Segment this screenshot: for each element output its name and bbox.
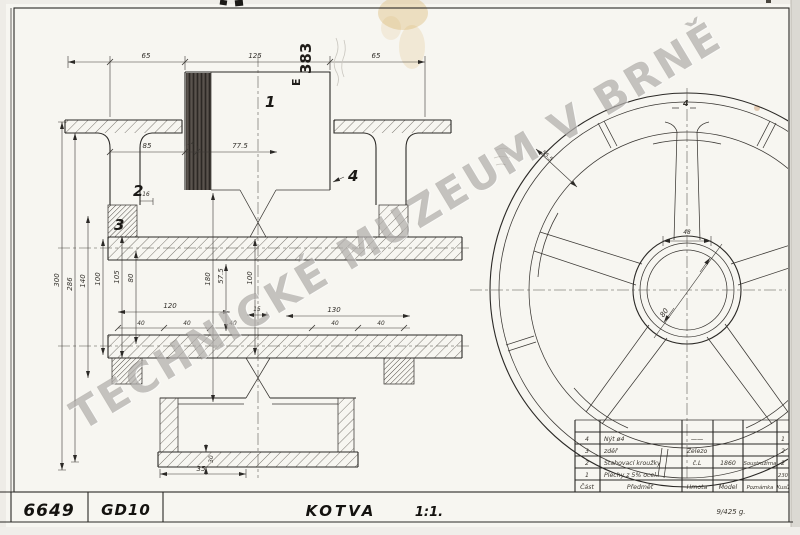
drawing-scale: 1:1. [415,505,443,520]
svg-text:Železo: Železo [686,446,708,455]
spoke-fillet-arcs [538,140,800,428]
svg-text:Plechy z 5% ocel.: Plechy z 5% ocel. [604,472,658,479]
table-header-item: Část [580,482,594,491]
drawing-code: GD10 [101,501,151,519]
svg-text:——: —— [691,436,703,443]
svg-text:120: 120 [163,302,177,310]
svg-text:4: 4 [585,436,589,443]
svg-text:130: 130 [327,306,341,314]
svg-text:E: E [290,78,303,86]
svg-text:30: 30 [209,455,215,463]
front-view: 48 80 55.5 4 [470,88,800,487]
svg-text:286: 286 [66,277,74,291]
svg-text:100: 100 [246,271,254,285]
drawing-number: 6649 [23,501,74,521]
svg-text:zděř: zděř [603,447,619,455]
svg-text:57.5: 57.5 [217,268,225,284]
svg-text:125: 125 [248,52,262,60]
svg-text:Soustružírna: Soustružírna [744,460,777,467]
svg-text:2: 2 [585,460,589,467]
table-header-qty: Kusů [777,484,790,491]
svg-text:40: 40 [229,321,237,327]
svg-text:48: 48 [683,230,691,236]
svg-text:300: 300 [53,273,61,287]
spokes [534,122,800,424]
svg-text:230: 230 [778,473,789,479]
svg-text:1860: 1860 [720,460,736,467]
scanned-technical-drawing-sheet: 1 2 3 4 65 125 65 85 14 77.5 16 [0,0,800,535]
drawing-canvas: 1 2 3 4 65 125 65 85 14 77.5 16 [0,0,800,535]
table-header-material: Hmota [687,483,708,491]
svg-text:40: 40 [377,321,385,327]
svg-text:14: 14 [187,141,195,147]
scan-edges [0,0,800,535]
svg-text:65: 65 [372,52,381,60]
parts-table: 4 Nýt ø4 —— 1 3 zděř Železo 2 2 Stahovac… [575,420,790,492]
section-view: 1 2 3 4 65 125 65 85 14 77.5 16 [53,52,470,478]
svg-text:40: 40 [183,321,191,327]
svg-text:383: 383 [297,43,315,74]
svg-text:40: 40 [137,321,145,327]
svg-text:65: 65 [142,52,151,60]
paper-stains [378,0,760,111]
sheet-frame [11,8,789,522]
svg-text:180: 180 [204,272,212,286]
svg-text:15: 15 [253,307,261,313]
svg-text:80: 80 [659,306,671,318]
svg-text:35: 35 [197,465,206,473]
drawing-title: KOTVA [306,502,377,520]
svg-text:105: 105 [113,270,121,284]
svg-text:Stahovací kroužky: Stahovací kroužky [604,459,661,467]
svg-text:1: 1 [781,436,785,443]
title-strip: 6649 GD10 KOTVA 1:1. 9/425 g. [0,492,793,522]
svg-text:3: 3 [585,448,589,455]
dimension-lines-vertical: 300 286 140 100 105 80 180 57.5 100 [53,122,255,470]
svg-text:80: 80 [127,273,135,282]
svg-text:100: 100 [94,272,102,286]
part-label-4: 4 [347,167,358,185]
dimension-lines-gap: 120 15 130 40 40 40 40 40 [115,302,410,331]
part-label-4-circle: 4 [682,99,689,108]
svg-text:77.5: 77.5 [232,142,248,150]
svg-text:1: 1 [585,472,589,479]
svg-text:85: 85 [143,142,152,150]
svg-text:16: 16 [142,192,150,198]
table-header-model: Model [719,484,738,491]
dimension-lines-circle: 48 80 55.5 4 [494,99,722,338]
svg-text:40: 40 [331,321,339,327]
table-header-note: Poznámka [747,484,774,491]
svg-text:č.L: č.L [693,459,702,467]
table-header-subject: Předmět [627,483,654,491]
dimension-lines-top: 65 125 65 [68,52,425,117]
part-label-1: 1 [265,93,275,111]
svg-text:Nýt ø4: Nýt ø4 [604,435,624,443]
stamp-note: 9/425 g. [716,508,745,516]
svg-text:140: 140 [79,274,87,288]
part-label-3: 3 [114,216,124,234]
svg-text:2: 2 [781,460,785,467]
svg-text:2: 2 [781,448,785,455]
